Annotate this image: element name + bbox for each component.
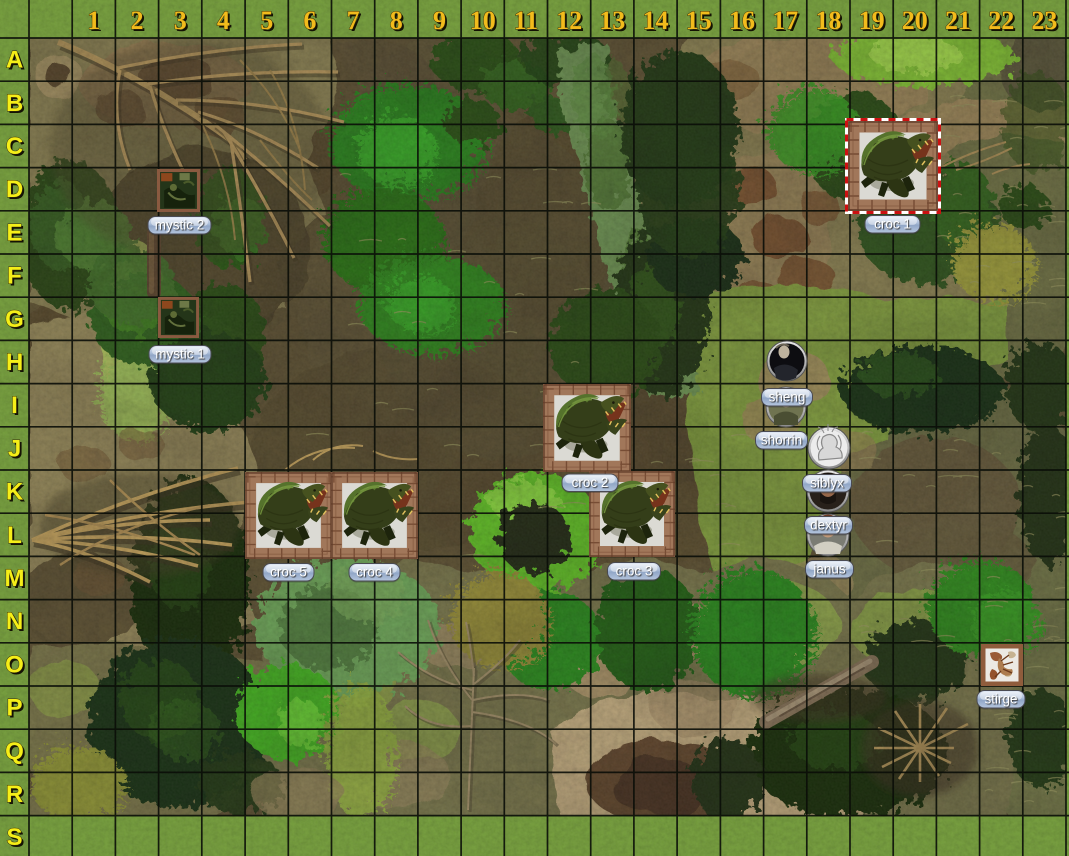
svg-text:B: B — [6, 90, 23, 117]
svg-text:11: 11 — [514, 6, 539, 35]
svg-text:12: 12 — [556, 6, 582, 35]
svg-text:D: D — [6, 176, 23, 203]
svg-text:23: 23 — [1031, 6, 1057, 35]
svg-text:9: 9 — [433, 6, 446, 35]
svg-text:F: F — [7, 263, 22, 290]
svg-text:I: I — [11, 392, 18, 419]
svg-text:stirge: stirge — [984, 692, 1017, 707]
svg-text:croc 5: croc 5 — [270, 565, 307, 580]
svg-text:14: 14 — [643, 6, 669, 35]
svg-text:1: 1 — [87, 6, 100, 35]
svg-text:croc 1: croc 1 — [874, 217, 911, 232]
svg-text:10: 10 — [470, 6, 496, 35]
svg-text:19: 19 — [859, 6, 885, 35]
svg-text:sheng: sheng — [769, 390, 806, 405]
svg-text:17: 17 — [772, 6, 798, 35]
svg-text:L: L — [7, 522, 22, 549]
svg-text:C: C — [6, 133, 23, 160]
svg-text:6: 6 — [303, 6, 316, 35]
svg-text:22: 22 — [988, 6, 1014, 35]
svg-text:siblyx: siblyx — [810, 476, 844, 491]
svg-text:janus: janus — [812, 562, 846, 577]
svg-text:16: 16 — [729, 6, 755, 35]
svg-text:P: P — [6, 695, 22, 722]
svg-text:R: R — [6, 781, 23, 808]
svg-text:20: 20 — [902, 6, 928, 35]
svg-text:A: A — [6, 47, 23, 74]
svg-text:M: M — [5, 565, 25, 592]
svg-text:8: 8 — [390, 6, 403, 35]
svg-text:E: E — [6, 219, 22, 246]
svg-text:shorrin: shorrin — [761, 433, 802, 448]
svg-text:7: 7 — [347, 6, 360, 35]
svg-text:S: S — [6, 824, 22, 851]
svg-text:Q: Q — [5, 738, 24, 765]
svg-text:18: 18 — [815, 6, 841, 35]
svg-text:O: O — [5, 651, 24, 678]
svg-text:5: 5 — [260, 6, 273, 35]
svg-text:dextyr: dextyr — [810, 518, 847, 533]
svg-text:mystic 1: mystic 1 — [155, 347, 205, 362]
svg-text:15: 15 — [686, 6, 712, 35]
svg-text:croc 3: croc 3 — [616, 564, 653, 579]
svg-text:mystic 2: mystic 2 — [155, 218, 205, 233]
svg-text:4: 4 — [217, 6, 230, 35]
svg-text:croc 2: croc 2 — [572, 475, 609, 490]
svg-text:21: 21 — [945, 6, 971, 35]
svg-text:croc 4: croc 4 — [356, 565, 393, 580]
svg-text:13: 13 — [599, 6, 625, 35]
svg-text:J: J — [8, 435, 21, 462]
svg-text:G: G — [5, 306, 24, 333]
svg-text:2: 2 — [131, 6, 144, 35]
svg-text:N: N — [6, 608, 23, 635]
svg-text:3: 3 — [174, 6, 187, 35]
svg-text:H: H — [6, 349, 23, 376]
svg-text:K: K — [6, 479, 24, 506]
